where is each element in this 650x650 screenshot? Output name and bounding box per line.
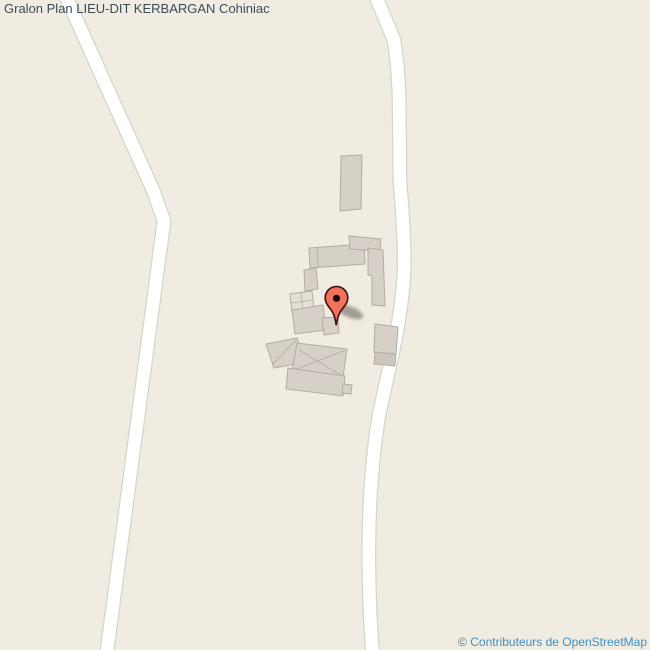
page-title: Gralon Plan LIEU-DIT KERBARGAN Cohiniac <box>4 1 270 17</box>
openstreetmap-attribution-link[interactable]: Contributeurs de OpenStreetMap <box>470 635 647 649</box>
building-north-barn <box>340 155 362 211</box>
map-canvas <box>0 0 650 650</box>
building-roadside-main <box>374 324 398 355</box>
map-viewport[interactable]: Gralon Plan LIEU-DIT KERBARGAN Cohiniac … <box>0 0 650 650</box>
building-roadside-lower <box>374 352 396 366</box>
marker-center-dot <box>333 295 340 302</box>
building-south-barn-annex <box>342 384 352 394</box>
building-marker-house <box>292 305 326 334</box>
building-small-shed <box>304 268 318 291</box>
copyright-symbol: © <box>458 635 470 649</box>
attribution: © Contributeurs de OpenStreetMap <box>458 635 647 649</box>
